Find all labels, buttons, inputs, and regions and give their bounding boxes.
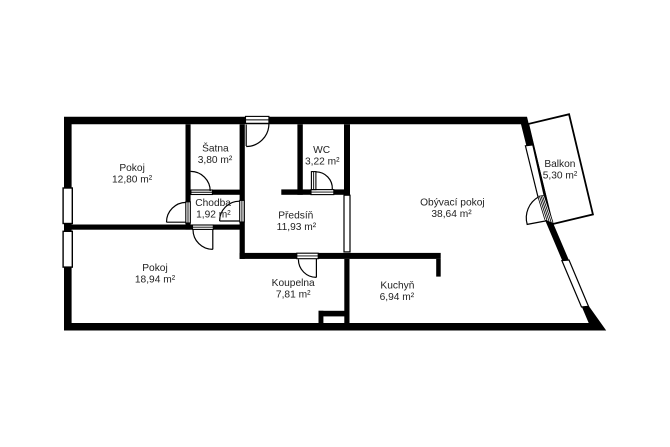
- svg-text:3,80 m²: 3,80 m²: [198, 155, 233, 166]
- svg-text:18,94 m²: 18,94 m²: [135, 274, 176, 285]
- svg-text:6,94 m²: 6,94 m²: [380, 292, 415, 303]
- svg-text:Chodba: Chodba: [195, 198, 231, 209]
- svg-text:12,80 m²: 12,80 m²: [112, 174, 153, 185]
- svg-text:WC: WC: [313, 145, 330, 156]
- svg-text:Balkon: Balkon: [544, 159, 575, 170]
- svg-text:11,93 m²: 11,93 m²: [277, 222, 317, 233]
- svg-text:5,30 m²: 5,30 m²: [543, 171, 578, 182]
- svg-text:Pokoj: Pokoj: [142, 263, 167, 274]
- svg-text:Pokoj: Pokoj: [119, 163, 144, 174]
- svg-text:Koupelna: Koupelna: [272, 278, 315, 289]
- svg-text:1,92 m²: 1,92 m²: [196, 210, 231, 221]
- svg-text:Obývací pokoj: Obývací pokoj: [420, 197, 485, 208]
- svg-text:Kuchyň: Kuchyň: [380, 280, 414, 291]
- svg-text:38,64 m²: 38,64 m²: [431, 209, 472, 220]
- svg-text:Předsíň: Předsíň: [278, 211, 313, 222]
- svg-text:7,81 m²: 7,81 m²: [276, 290, 311, 301]
- svg-text:Šatna: Šatna: [202, 141, 229, 154]
- svg-text:3,22 m²: 3,22 m²: [305, 156, 340, 167]
